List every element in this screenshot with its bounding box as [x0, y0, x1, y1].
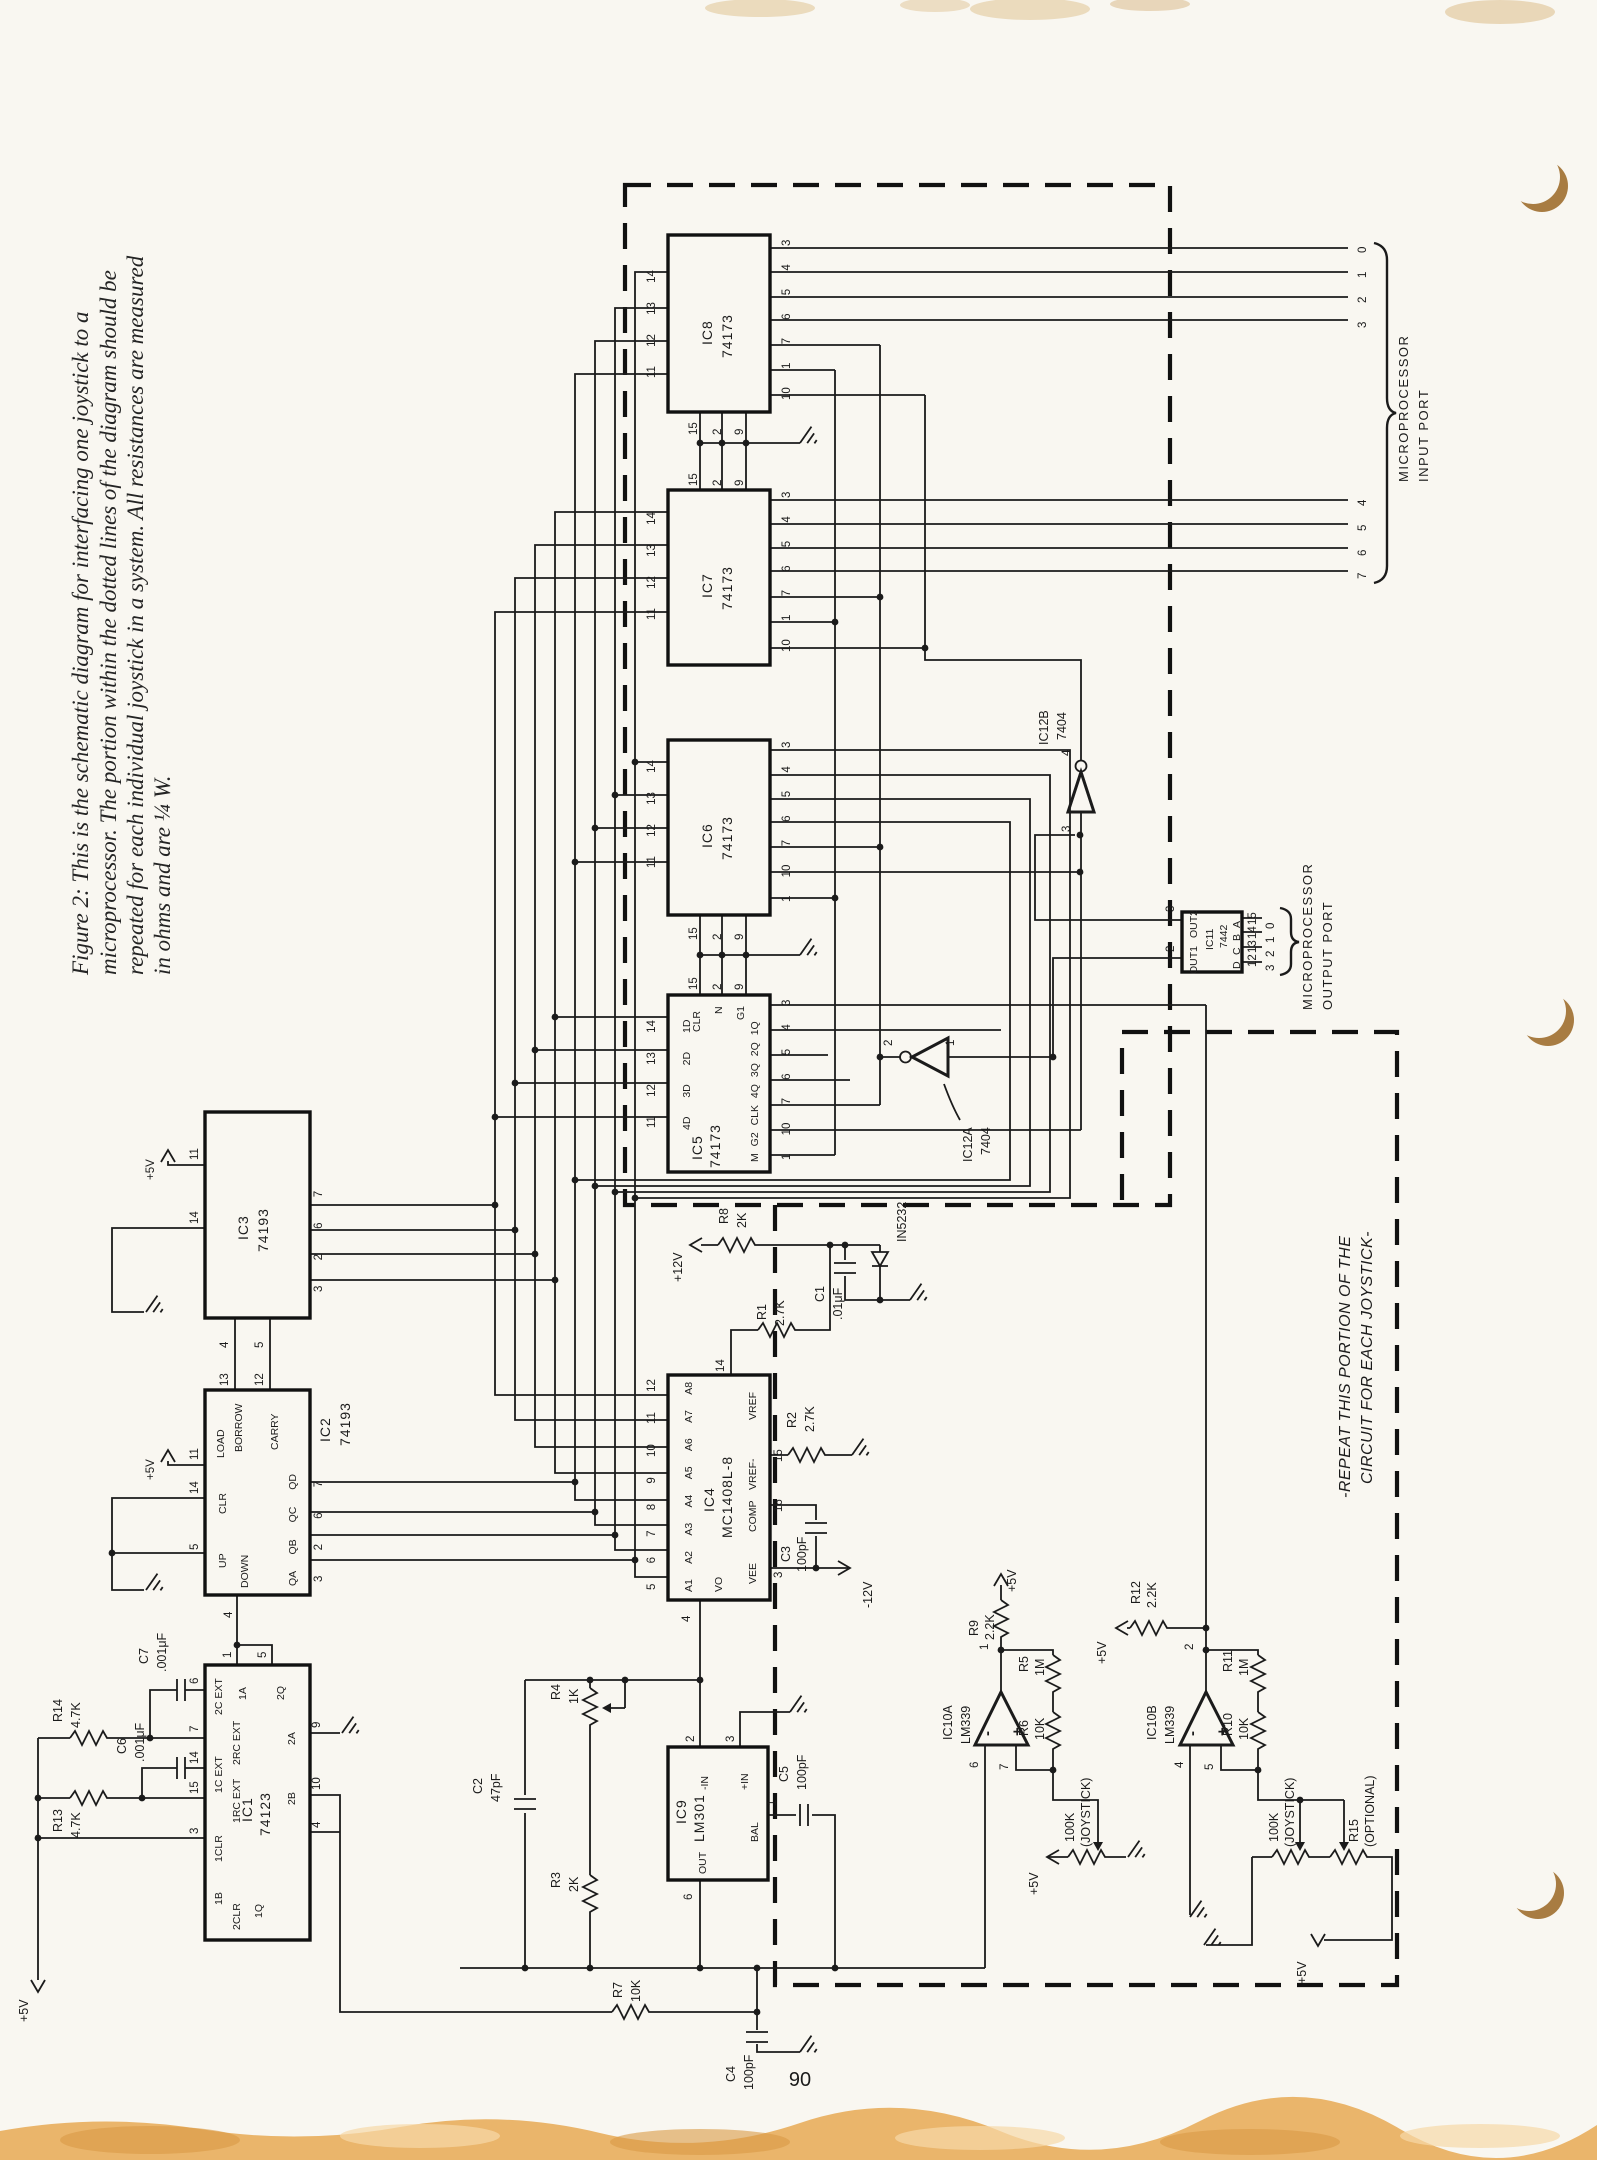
resistor-r14	[70, 1731, 110, 1745]
resistor-r13	[70, 1791, 110, 1805]
junction-dot	[512, 1227, 519, 1234]
ic11-label-out1: OUT1	[1188, 946, 1200, 974]
junction-dot	[572, 1177, 579, 1184]
junction-dot	[697, 1965, 704, 1972]
ic9-pin-3: 3	[725, 1736, 737, 1742]
r5-name: R5	[1017, 1656, 1031, 1672]
r2-name: R2	[785, 1412, 799, 1428]
junction-dot	[743, 952, 750, 959]
ic7-pins-left: 11 12 13 14	[646, 511, 658, 620]
ic10b-name: IC10B	[1145, 1705, 1159, 1740]
junction-dot	[827, 1242, 834, 1249]
resistor-r10	[1251, 1712, 1265, 1752]
junction-dot	[754, 2009, 761, 2016]
junction-dot	[743, 440, 750, 447]
input-bit-4: 4	[1357, 499, 1369, 506]
wire-comparators	[1001, 1005, 1392, 1945]
ic11-pin-3: 3	[1165, 906, 1177, 912]
r12-value: 2.2K	[1145, 1582, 1159, 1608]
capacitor-c1	[834, 1263, 856, 1273]
junction-dot	[109, 1550, 116, 1557]
junction-dot	[1203, 1625, 1210, 1632]
c6-name: C6	[115, 1738, 129, 1754]
ic5-label-g1: G1	[735, 1006, 747, 1020]
ic11-pin-2: 2	[1165, 946, 1177, 952]
r11-name: R11	[1221, 1650, 1235, 1672]
output-bit-2: 2	[1265, 951, 1277, 957]
repeat-note-line-1: -REPEAT THIS PORTION OF THE	[1337, 1236, 1354, 1498]
c4-value: 100pF	[742, 2054, 756, 2090]
junction-dot	[522, 1965, 529, 1972]
output-bit-1: 1	[1265, 937, 1277, 943]
ic8-pins-right: 10 1 7 6 5 4 3	[781, 240, 793, 400]
ic9-opamp: IC9 LM301 2 3 -IN +IN 1 BAL 6 OUT	[668, 1736, 779, 1900]
ic6-pins-right: 1 10 7 6 5 4 3	[781, 742, 793, 902]
repeat-note-line-2: CIRCUIT FOR EACH JOYSTICK-	[1359, 1231, 1376, 1484]
ic6-pin-2: 2	[712, 934, 724, 940]
ic9-pin-2: 2	[685, 1736, 697, 1742]
capacitor-c7	[177, 1679, 185, 1701]
ic1-pin-6: 6	[189, 1678, 201, 1684]
ic7-pin-2: 2	[712, 480, 724, 486]
ic10b-minus: -	[1184, 1731, 1201, 1736]
caption-line-4: in ohms and are ¼ W.	[150, 775, 175, 975]
ic10b-comparator: - + 2 4 5 IC10B LM339	[1145, 1644, 1233, 1770]
ic2-pin-13: 13	[219, 1373, 231, 1386]
power-arrow-icon	[1311, 1934, 1325, 1946]
punch-hole-mask	[1506, 150, 1560, 204]
ic1-label-1a: 1A	[237, 1687, 249, 1700]
ic7-pins-right: 10 1 7 6 5 4 3	[781, 492, 793, 652]
ic11-label-out2: OUT2	[1188, 910, 1200, 938]
junction-dot	[697, 952, 704, 959]
c1-value: .01μF	[831, 1287, 845, 1320]
junction-dot	[592, 825, 599, 832]
ic2-pin-5: 5	[189, 1544, 201, 1550]
ground-icon	[910, 1284, 931, 1307]
input-port-label-2: INPUT PORT	[1416, 389, 1431, 482]
figure-caption: Figure 2: This is the schematic diagram …	[68, 255, 175, 976]
r5-value: 1M	[1033, 1659, 1047, 1676]
ic5-label-clr: CLR	[691, 1011, 703, 1032]
ic1-label-1rc-ext: 1RC EXT	[231, 1778, 243, 1823]
caption-line-3: repeated for each individual joystick in…	[123, 255, 148, 975]
ic11-pin-15: 15	[1247, 912, 1259, 925]
plus5v-label: +5V	[1295, 1961, 1309, 1984]
ground-icon	[342, 1717, 363, 1740]
ic10a-name: IC10A	[941, 1705, 955, 1740]
ic12b-inverter: 4 3 IC12B 7404	[1037, 710, 1094, 832]
pot2-name: 100K	[1267, 1812, 1281, 1842]
junction-dot	[552, 1014, 559, 1021]
ic10a-triangle	[975, 1692, 1028, 1745]
input-bit-0: 0	[1357, 247, 1369, 253]
ic10b-part: LM339	[1163, 1706, 1177, 1744]
junction-dot	[842, 1242, 849, 1249]
stain	[1400, 2124, 1560, 2148]
junction-dot	[719, 952, 726, 959]
junction-dot	[35, 1795, 42, 1802]
ic4-pins-left: 5 6 7 8 9 10 11 12	[646, 1379, 658, 1590]
junction-dot	[1297, 1797, 1304, 1804]
stain	[60, 2126, 240, 2154]
ic1-label-2clr: 2CLR	[231, 1903, 243, 1930]
ic10a-minus: -	[979, 1731, 996, 1736]
input-bit-6: 6	[1357, 550, 1369, 556]
capacitor-c6	[177, 1757, 185, 1779]
stain	[1160, 2129, 1340, 2155]
r14-value: 4.7K	[69, 1702, 83, 1728]
junction-dot	[1050, 1767, 1057, 1774]
power-arrow-icon	[161, 1450, 175, 1462]
output-port-brace	[1280, 908, 1299, 975]
capacitor-c5	[800, 1804, 808, 1826]
ic2-label-borrow: BORROW	[233, 1403, 245, 1452]
ic9-label-minus-in: -IN	[699, 1776, 711, 1790]
wiper-arrow-icon	[1339, 1842, 1349, 1851]
resistor-r12	[1130, 1621, 1170, 1635]
ic5-labels-left: 4D 3D 2D 1D	[681, 1019, 693, 1130]
ic3-name: IC3	[235, 1215, 251, 1240]
ic5-pin-15: 15	[688, 977, 700, 990]
ic11-decoder: IC11 7442 3 2 OUT2 OUT1 A B C D 15 14 13…	[1165, 863, 1335, 1010]
resistor-r6	[1046, 1712, 1060, 1752]
ic7-pin-9: 9	[734, 480, 746, 486]
stain	[340, 2124, 500, 2148]
ic10a-part: LM339	[959, 1706, 973, 1744]
junction-dot	[832, 1965, 839, 1972]
c2-name: C2	[471, 1778, 485, 1794]
ic8-register: IC8 74173 11 12 13 14 10 1 7 6 5 4 3 15 …	[646, 235, 793, 435]
c3-value: 100pF	[795, 1536, 809, 1572]
ic12a-part: 7404	[979, 1127, 993, 1155]
c3-name: C3	[779, 1546, 793, 1562]
junction-dot	[592, 1509, 599, 1516]
ic6-name: IC6	[699, 823, 715, 848]
junction-dot	[234, 1642, 241, 1649]
ic9-name: IC9	[673, 1799, 689, 1824]
ic11-label-b: B	[1231, 934, 1243, 941]
ground-icon	[800, 2036, 821, 2059]
ic10b-pin-5: 5	[1204, 1764, 1216, 1770]
ic2-pins-right: 3 2 6 7	[313, 1481, 325, 1582]
ic1-oneshot: IC1 74123 1 5 1A 2Q 6 7 14 15 3 2C EXT 2…	[189, 1652, 323, 1940]
page-number: 90	[789, 2069, 811, 2091]
junction-dot	[572, 859, 579, 866]
junction-dot	[832, 895, 839, 902]
ic11-label-c: C	[1231, 947, 1243, 955]
power-arrow-icon	[1116, 1621, 1128, 1635]
power-arrow-icon	[161, 1150, 175, 1162]
resistor-r11	[1251, 1655, 1265, 1695]
ic5-label-n: N	[713, 1006, 725, 1014]
ground-icon	[1128, 1841, 1149, 1864]
stain	[1445, 0, 1555, 24]
ic6-register: IC6 74173 11 12 13 14 1 10 7 6 5 4 3 15 …	[646, 740, 793, 940]
c7-name: C7	[137, 1648, 151, 1664]
stain	[1110, 0, 1190, 11]
ic4-labels-left: A1 A2 A3 A4 A5 A6 A7 A8	[683, 1382, 695, 1592]
ic6-pins-left: 11 12 13 14	[646, 759, 658, 868]
plus5v-label: +5V	[1005, 1569, 1019, 1592]
input-bit-2: 2	[1357, 297, 1369, 303]
junction-dot	[612, 792, 619, 799]
ic1-label-2c-ext: 2C EXT	[213, 1678, 225, 1715]
ic7-name: IC7	[699, 573, 715, 598]
ic1-part: 74123	[257, 1792, 273, 1836]
ic1-label-1b: 1B	[213, 1892, 225, 1905]
ic3-part: 74193	[255, 1208, 271, 1252]
junction-dot	[1203, 1647, 1210, 1654]
ground-icon	[146, 1296, 167, 1319]
potentiometer-joystick-1	[1068, 1850, 1108, 1864]
ground-icon	[790, 1696, 811, 1719]
c1-name: C1	[813, 1286, 827, 1302]
pot1-name: 100K	[1063, 1812, 1077, 1842]
junction-dot	[147, 1735, 154, 1742]
ic1-pin-4: 4	[311, 1821, 323, 1828]
junction-dot	[832, 619, 839, 626]
ic10a-pin-7: 7	[999, 1764, 1011, 1770]
r3-value: 2K	[567, 1876, 581, 1892]
ic9-pin-1: 1	[767, 1800, 779, 1806]
resistor-r5	[1046, 1655, 1060, 1695]
wire-counter-oneshot	[38, 1161, 800, 2052]
ic1-label-2q: 2Q	[275, 1686, 287, 1700]
junction-dot	[877, 1054, 884, 1061]
ic3-pin-14: 14	[189, 1211, 201, 1224]
r3-name: R3	[549, 1872, 563, 1888]
ic12b-pin-4: 4	[1061, 749, 1073, 756]
ic1-pin-15: 15	[189, 1781, 201, 1794]
r13-value: 4.7K	[69, 1812, 83, 1838]
plus5v-label: +5V	[1027, 1872, 1041, 1895]
junction-dot	[587, 1965, 594, 1972]
ic2-counter: IC2 74193 11 14 5 4 13 12 LOAD BORROW CA…	[145, 1373, 353, 1618]
ic9-part: LM301	[691, 1794, 707, 1842]
ic7-register: IC7 74173 11 12 13 14 10 1 7 6 5 4 3 15 …	[646, 473, 793, 665]
output-port-label-2: OUTPUT PORT	[1320, 901, 1335, 1010]
ground-icon	[146, 1574, 167, 1597]
ic10a-pin-1: 1	[979, 1644, 991, 1650]
ic8-pins-left: 11 12 13 14	[646, 269, 658, 378]
ic11-pin-14: 14	[1247, 926, 1259, 939]
output-bit-3: 3	[1265, 965, 1277, 971]
ic4-label-vref-minus: VREF-	[747, 1458, 759, 1490]
punch-hole-mask	[1502, 1857, 1556, 1911]
power-arrow-icon	[31, 1980, 45, 1992]
ic11-pin-12: 12	[1247, 954, 1259, 967]
resistor-r3	[583, 1875, 597, 1915]
ic2-pin-14: 14	[189, 1481, 201, 1494]
ic12a-name: IC12A	[961, 1127, 975, 1162]
r6-name: R6	[1017, 1720, 1031, 1736]
ic8-pin-9: 9	[734, 429, 746, 435]
stain	[610, 2129, 790, 2155]
ic4-dac: IC4 MC1408L-8 5 6 7 8 9 10 11 12 A1 A2 A…	[646, 1359, 785, 1622]
ic1-pin-10: 10	[311, 1777, 323, 1790]
stain	[900, 0, 970, 12]
ic11-pin-13: 13	[1247, 940, 1259, 953]
r6-value: 10K	[1033, 1717, 1047, 1740]
r15-value: (OPTIONAL)	[1363, 1775, 1377, 1847]
plus5v-label: +5V	[17, 1999, 31, 2022]
potentiometer-joystick-2	[1272, 1850, 1312, 1864]
stain	[970, 0, 1090, 20]
ic6-part: 74173	[719, 816, 735, 860]
c6-value: .001μF	[133, 1722, 147, 1762]
ic7-pin-15: 15	[688, 473, 700, 486]
junction-dot	[552, 1277, 559, 1284]
ic11-name: IC11	[1204, 928, 1216, 950]
ic1-label-2a: 2A	[286, 1732, 298, 1745]
r1-value: 2.7K	[773, 1300, 787, 1326]
junction-dot	[998, 1647, 1005, 1654]
junction-dot	[612, 1189, 619, 1196]
r9-name: R9	[967, 1620, 981, 1636]
junction-dot	[622, 1677, 629, 1684]
r8-value: 2K	[735, 1212, 749, 1228]
ic2-part: 74193	[337, 1402, 353, 1446]
r10-name: R10	[1221, 1713, 1235, 1736]
r9-value: 2.2K	[983, 1614, 997, 1640]
ic3-counter: IC3 74193 11 14 3 2 6 7 4 5 +5V	[145, 1112, 325, 1348]
resistor-r4	[583, 1688, 597, 1728]
wire-port-and-control	[770, 248, 1348, 1155]
minus12v-label: -12V	[861, 1581, 875, 1608]
r7-name: R7	[611, 1982, 625, 1998]
ic10b-pin-4: 4	[1174, 1761, 1186, 1768]
input-bit-1: 1	[1357, 272, 1369, 278]
ic4-part: MC1408L-8	[719, 1456, 735, 1538]
junction-dot	[587, 1677, 594, 1684]
capacitor-c3	[805, 1523, 827, 1533]
resistor-r2	[788, 1448, 828, 1462]
ic12b-triangle	[1068, 772, 1094, 812]
ic11-label-a: A	[1231, 921, 1243, 928]
ic1-label-2b: 2B	[286, 1792, 298, 1805]
microprocessor-input-port: 0 1 2 3 4 5 6 7 MICROPROCESSOR INPUT POR…	[1357, 243, 1431, 583]
junction-dot	[719, 440, 726, 447]
ic12b-part: 7404	[1055, 712, 1069, 740]
ic4-pin-14: 14	[715, 1359, 727, 1372]
c5-name: C5	[777, 1766, 791, 1782]
junction-dot	[592, 1183, 599, 1190]
junction-dot	[813, 1565, 820, 1572]
r4-value: 1K	[567, 1688, 581, 1704]
ic1-pin-9: 9	[311, 1722, 323, 1728]
ic4-label-vref: VREF	[747, 1392, 759, 1420]
ic12b-pin-3: 3	[1061, 826, 1073, 832]
ic2-pin-4: 4	[223, 1611, 235, 1618]
ground-icon	[800, 939, 821, 962]
ic2-label-down: DOWN	[239, 1555, 251, 1588]
ic1-label-1q: 1Q	[253, 1904, 265, 1918]
ic8-name: IC8	[699, 320, 715, 345]
bottom-scan-band	[0, 2097, 1597, 2160]
ic5-pins-right: 1 10 7 6 5 4 3	[781, 1000, 793, 1160]
r14-name: R14	[51, 1699, 65, 1722]
ic12a-triangle	[912, 1038, 948, 1076]
ic5-register: IC5 74173 11 12 13 14 4D 3D 2D 1D 1 10 7…	[646, 977, 793, 1172]
pot2-value: (JOYSTICK)	[1283, 1778, 1297, 1847]
input-port-label-1: MICROPROCESSOR	[1396, 335, 1411, 482]
repeat-note: -REPEAT THIS PORTION OF THE CIRCUIT FOR …	[1337, 1231, 1376, 1498]
ground-icon	[1204, 1929, 1225, 1952]
r8-name: R8	[717, 1208, 731, 1224]
plus5v-label: +5V	[1095, 1641, 1109, 1664]
ground-icon	[800, 427, 821, 450]
input-bit-3: 3	[1357, 322, 1369, 328]
junction-dot	[754, 1965, 761, 1972]
r10-value: 10K	[1237, 1717, 1251, 1740]
ground-icon	[1190, 1901, 1211, 1924]
junction-dot	[35, 1835, 42, 1842]
ic7-part: 74173	[719, 566, 735, 610]
wiper-arrow-icon	[602, 1703, 611, 1713]
r7-value: 10K	[629, 1979, 643, 2002]
junction-dot	[492, 1202, 499, 1209]
r12-name: R12	[1129, 1581, 1143, 1604]
r13-name: R13	[51, 1809, 65, 1832]
zener-label: IN5232	[895, 1202, 909, 1242]
output-port-label-1: MICROPROCESSOR	[1300, 863, 1315, 1010]
ic5-part: 74173	[707, 1124, 723, 1168]
ic1-label-1c-ext: 1C EXT	[213, 1756, 225, 1793]
junction-dot	[632, 759, 639, 766]
junction-dot	[1255, 1767, 1262, 1774]
ic12a-pin-2: 2	[883, 1040, 895, 1046]
resistor-r7	[612, 2005, 652, 2019]
ic9-label-plus-in: +IN	[739, 1773, 751, 1790]
resistor-r8	[718, 1238, 758, 1252]
junction-dot	[922, 645, 929, 652]
ic2-pin-11: 11	[189, 1448, 201, 1460]
ic12a-pin-1: 1	[945, 1040, 957, 1046]
junction-dot	[1077, 869, 1084, 876]
junction-dot	[632, 1195, 639, 1202]
ic1-pin-14: 14	[189, 1751, 201, 1764]
zener-diode-in5232	[872, 1252, 888, 1266]
input-bit-7: 7	[1357, 573, 1369, 579]
ic2-name: IC2	[317, 1417, 333, 1442]
c2-value: 47pF	[489, 1773, 503, 1802]
junction-dot	[697, 440, 704, 447]
ic2-pin-12: 12	[254, 1373, 266, 1386]
c5-value: 100pF	[795, 1754, 809, 1790]
ic3-pin-11: 11	[189, 1148, 201, 1160]
junction-dot	[1050, 1054, 1057, 1061]
junction-dot	[512, 1080, 519, 1087]
ic2-label-load: LOAD	[215, 1429, 227, 1458]
junction-dot	[532, 1047, 539, 1054]
ic9-label-out: OUT	[697, 1851, 709, 1874]
ic9-label-bal: BAL	[749, 1822, 761, 1842]
ic1-pin-7: 7	[189, 1726, 201, 1732]
ic1-pin-1: 1	[222, 1652, 234, 1658]
ic8-part: 74173	[719, 314, 735, 358]
ic6-pin-9: 9	[734, 934, 746, 940]
junction-dot	[877, 844, 884, 851]
ic5-labels-right: M G2 CLK 4Q 3Q 2Q 1Q	[749, 1021, 761, 1162]
ic4-label-comp: COMP	[747, 1501, 759, 1533]
ic2-labels-q: QA QB QC QD	[287, 1474, 299, 1586]
ic2-label-carry: CARRY	[269, 1413, 281, 1450]
ic3-pin-4: 4	[219, 1341, 231, 1348]
ic2-label-up: UP	[217, 1553, 229, 1568]
ic10a-pin-6: 6	[969, 1762, 981, 1768]
junction-dot	[612, 1532, 619, 1539]
